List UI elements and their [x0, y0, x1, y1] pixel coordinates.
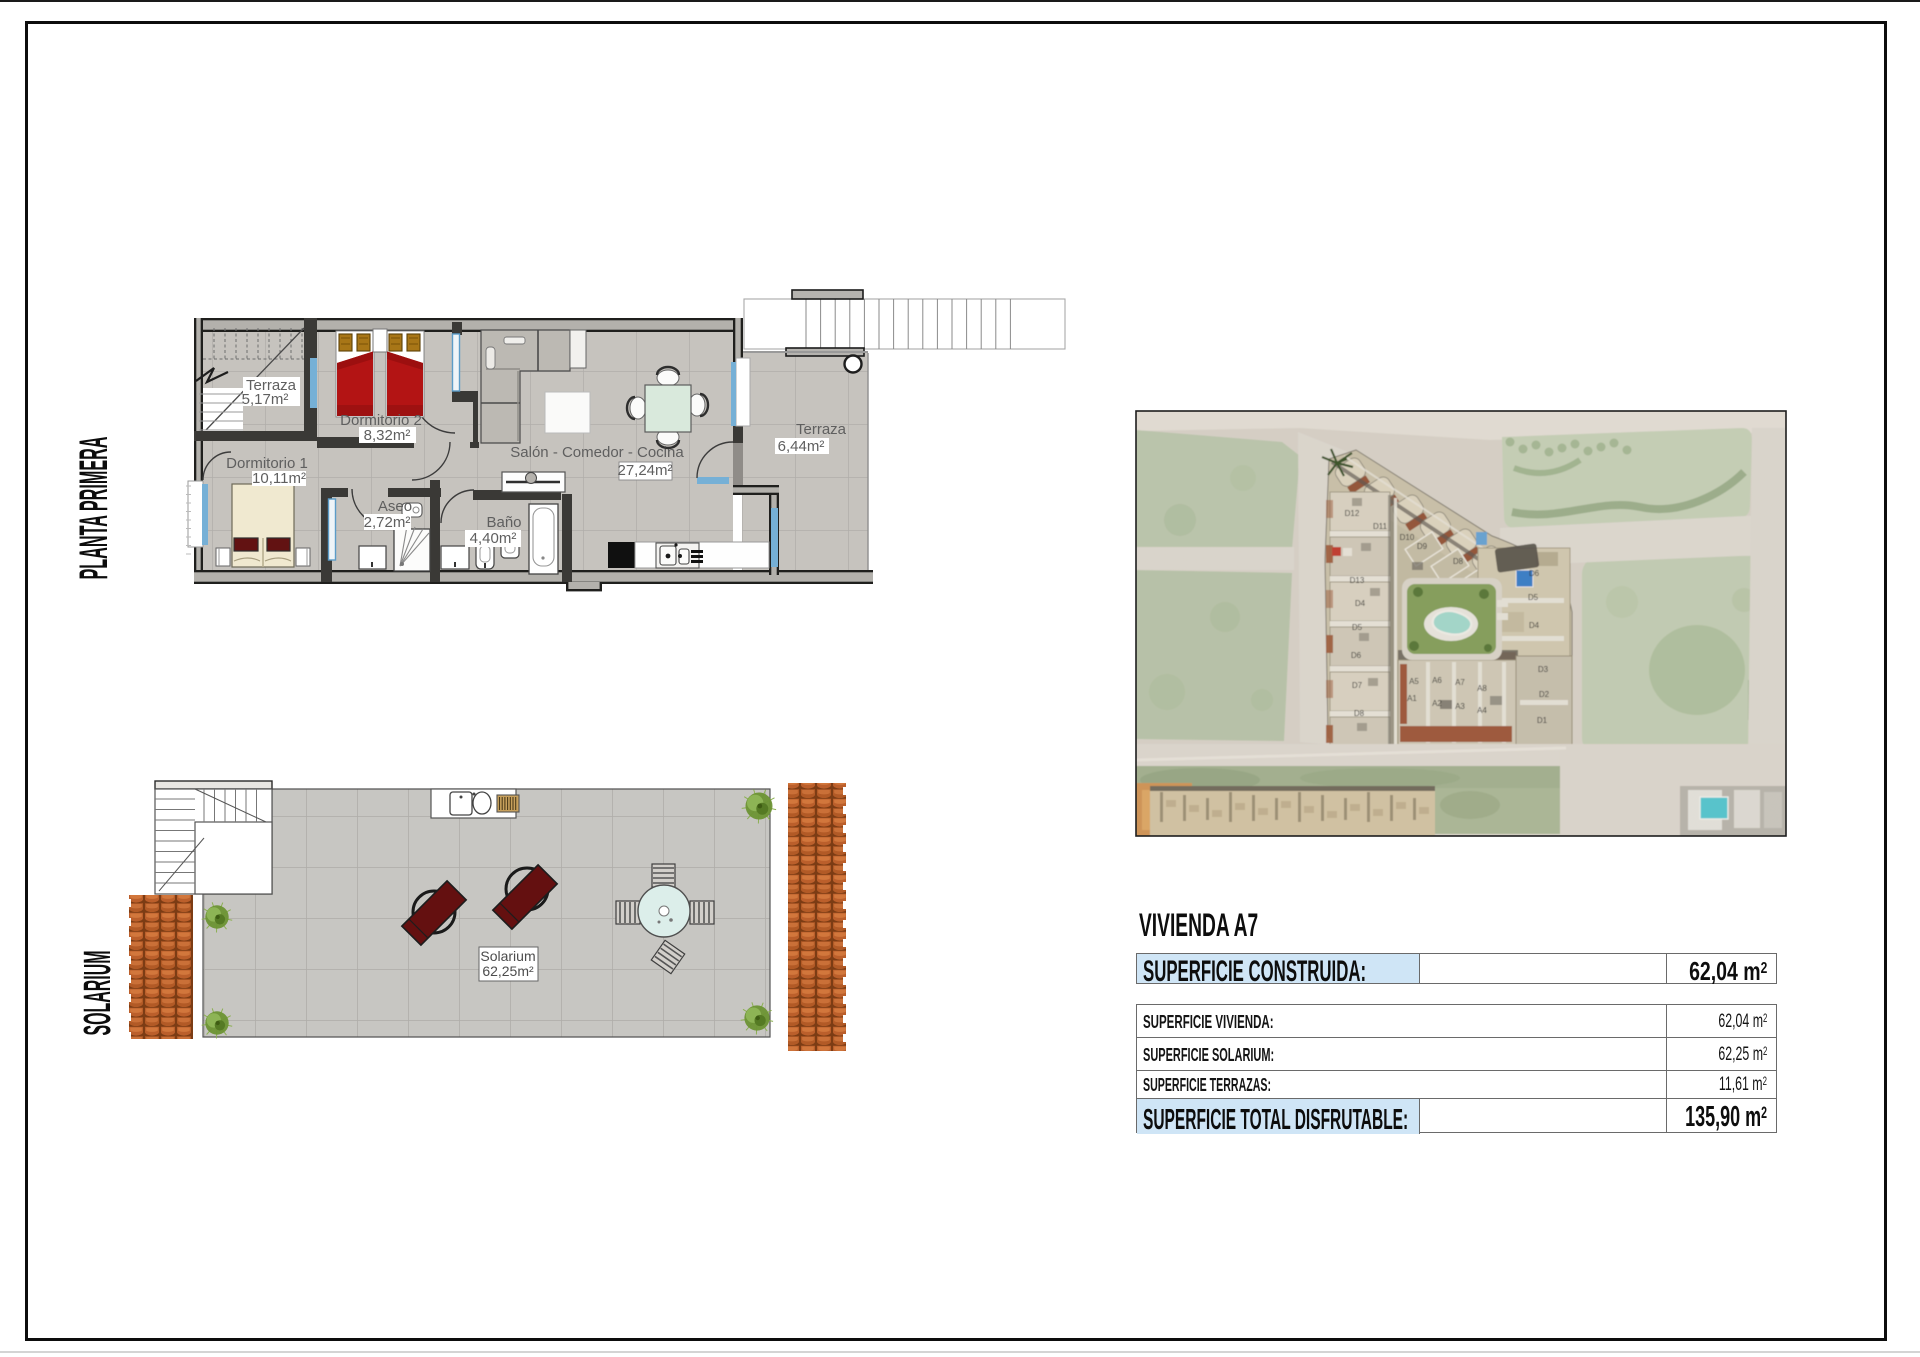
svg-text:PLANTA PRIMERA: PLANTA PRIMERA	[72, 437, 116, 580]
svg-text:Salón - Comedor - Cocina: Salón - Comedor - Cocina	[510, 444, 684, 461]
svg-text:Solarium: Solarium	[480, 948, 535, 964]
svg-text:62,25m²: 62,25m²	[482, 963, 534, 979]
svg-text:27,24m²: 27,24m²	[617, 462, 672, 479]
svg-text:Aseo: Aseo	[378, 498, 412, 515]
svg-text:10,11m²: 10,11m²	[252, 470, 306, 487]
svg-text:2,72m²: 2,72m²	[364, 514, 411, 531]
svg-text:4,40m²: 4,40m²	[470, 530, 517, 547]
svg-text:6,44m²: 6,44m²	[778, 438, 825, 455]
svg-text:8,32m²: 8,32m²	[364, 427, 411, 444]
svg-text:5,17m²: 5,17m²	[242, 391, 289, 408]
svg-text:Baño: Baño	[486, 514, 521, 531]
svg-text:Terraza: Terraza	[796, 421, 847, 438]
svg-text:SOLARIUM: SOLARIUM	[77, 951, 119, 1036]
